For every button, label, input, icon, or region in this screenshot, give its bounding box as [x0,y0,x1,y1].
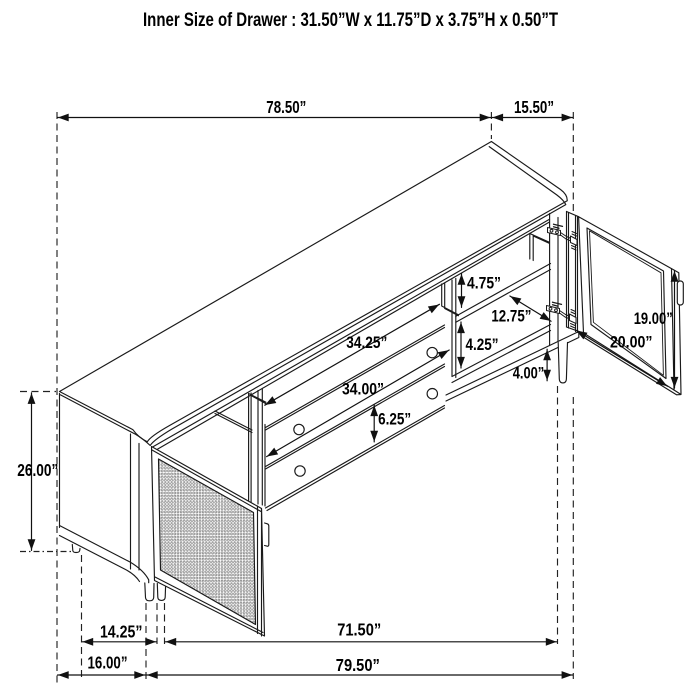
svg-text:4.00”: 4.00” [513,364,545,383]
svg-text:4.25”: 4.25” [466,335,499,354]
svg-text:Inner Size of Drawer : 31.50”W: Inner Size of Drawer : 31.50”W x 11.75”D… [143,10,558,31]
svg-text:4.75”: 4.75” [467,274,501,293]
svg-text:14.25”: 14.25” [100,622,143,642]
svg-text:78.50”: 78.50” [266,97,306,117]
svg-text:34.00”: 34.00” [342,380,384,399]
svg-text:71.50”: 71.50” [337,620,381,640]
svg-text:34.25”: 34.25” [346,333,387,352]
svg-text:79.50”: 79.50” [336,655,380,675]
svg-text:16.00”: 16.00” [88,653,128,673]
svg-text:12.75”: 12.75” [491,307,531,325]
svg-text:19.00”: 19.00” [634,309,673,328]
svg-text:15.50”: 15.50” [514,97,554,117]
svg-text:20.00”: 20.00” [610,333,653,352]
svg-text:26.00”: 26.00” [17,460,58,480]
svg-text:6.25”: 6.25” [378,410,411,429]
